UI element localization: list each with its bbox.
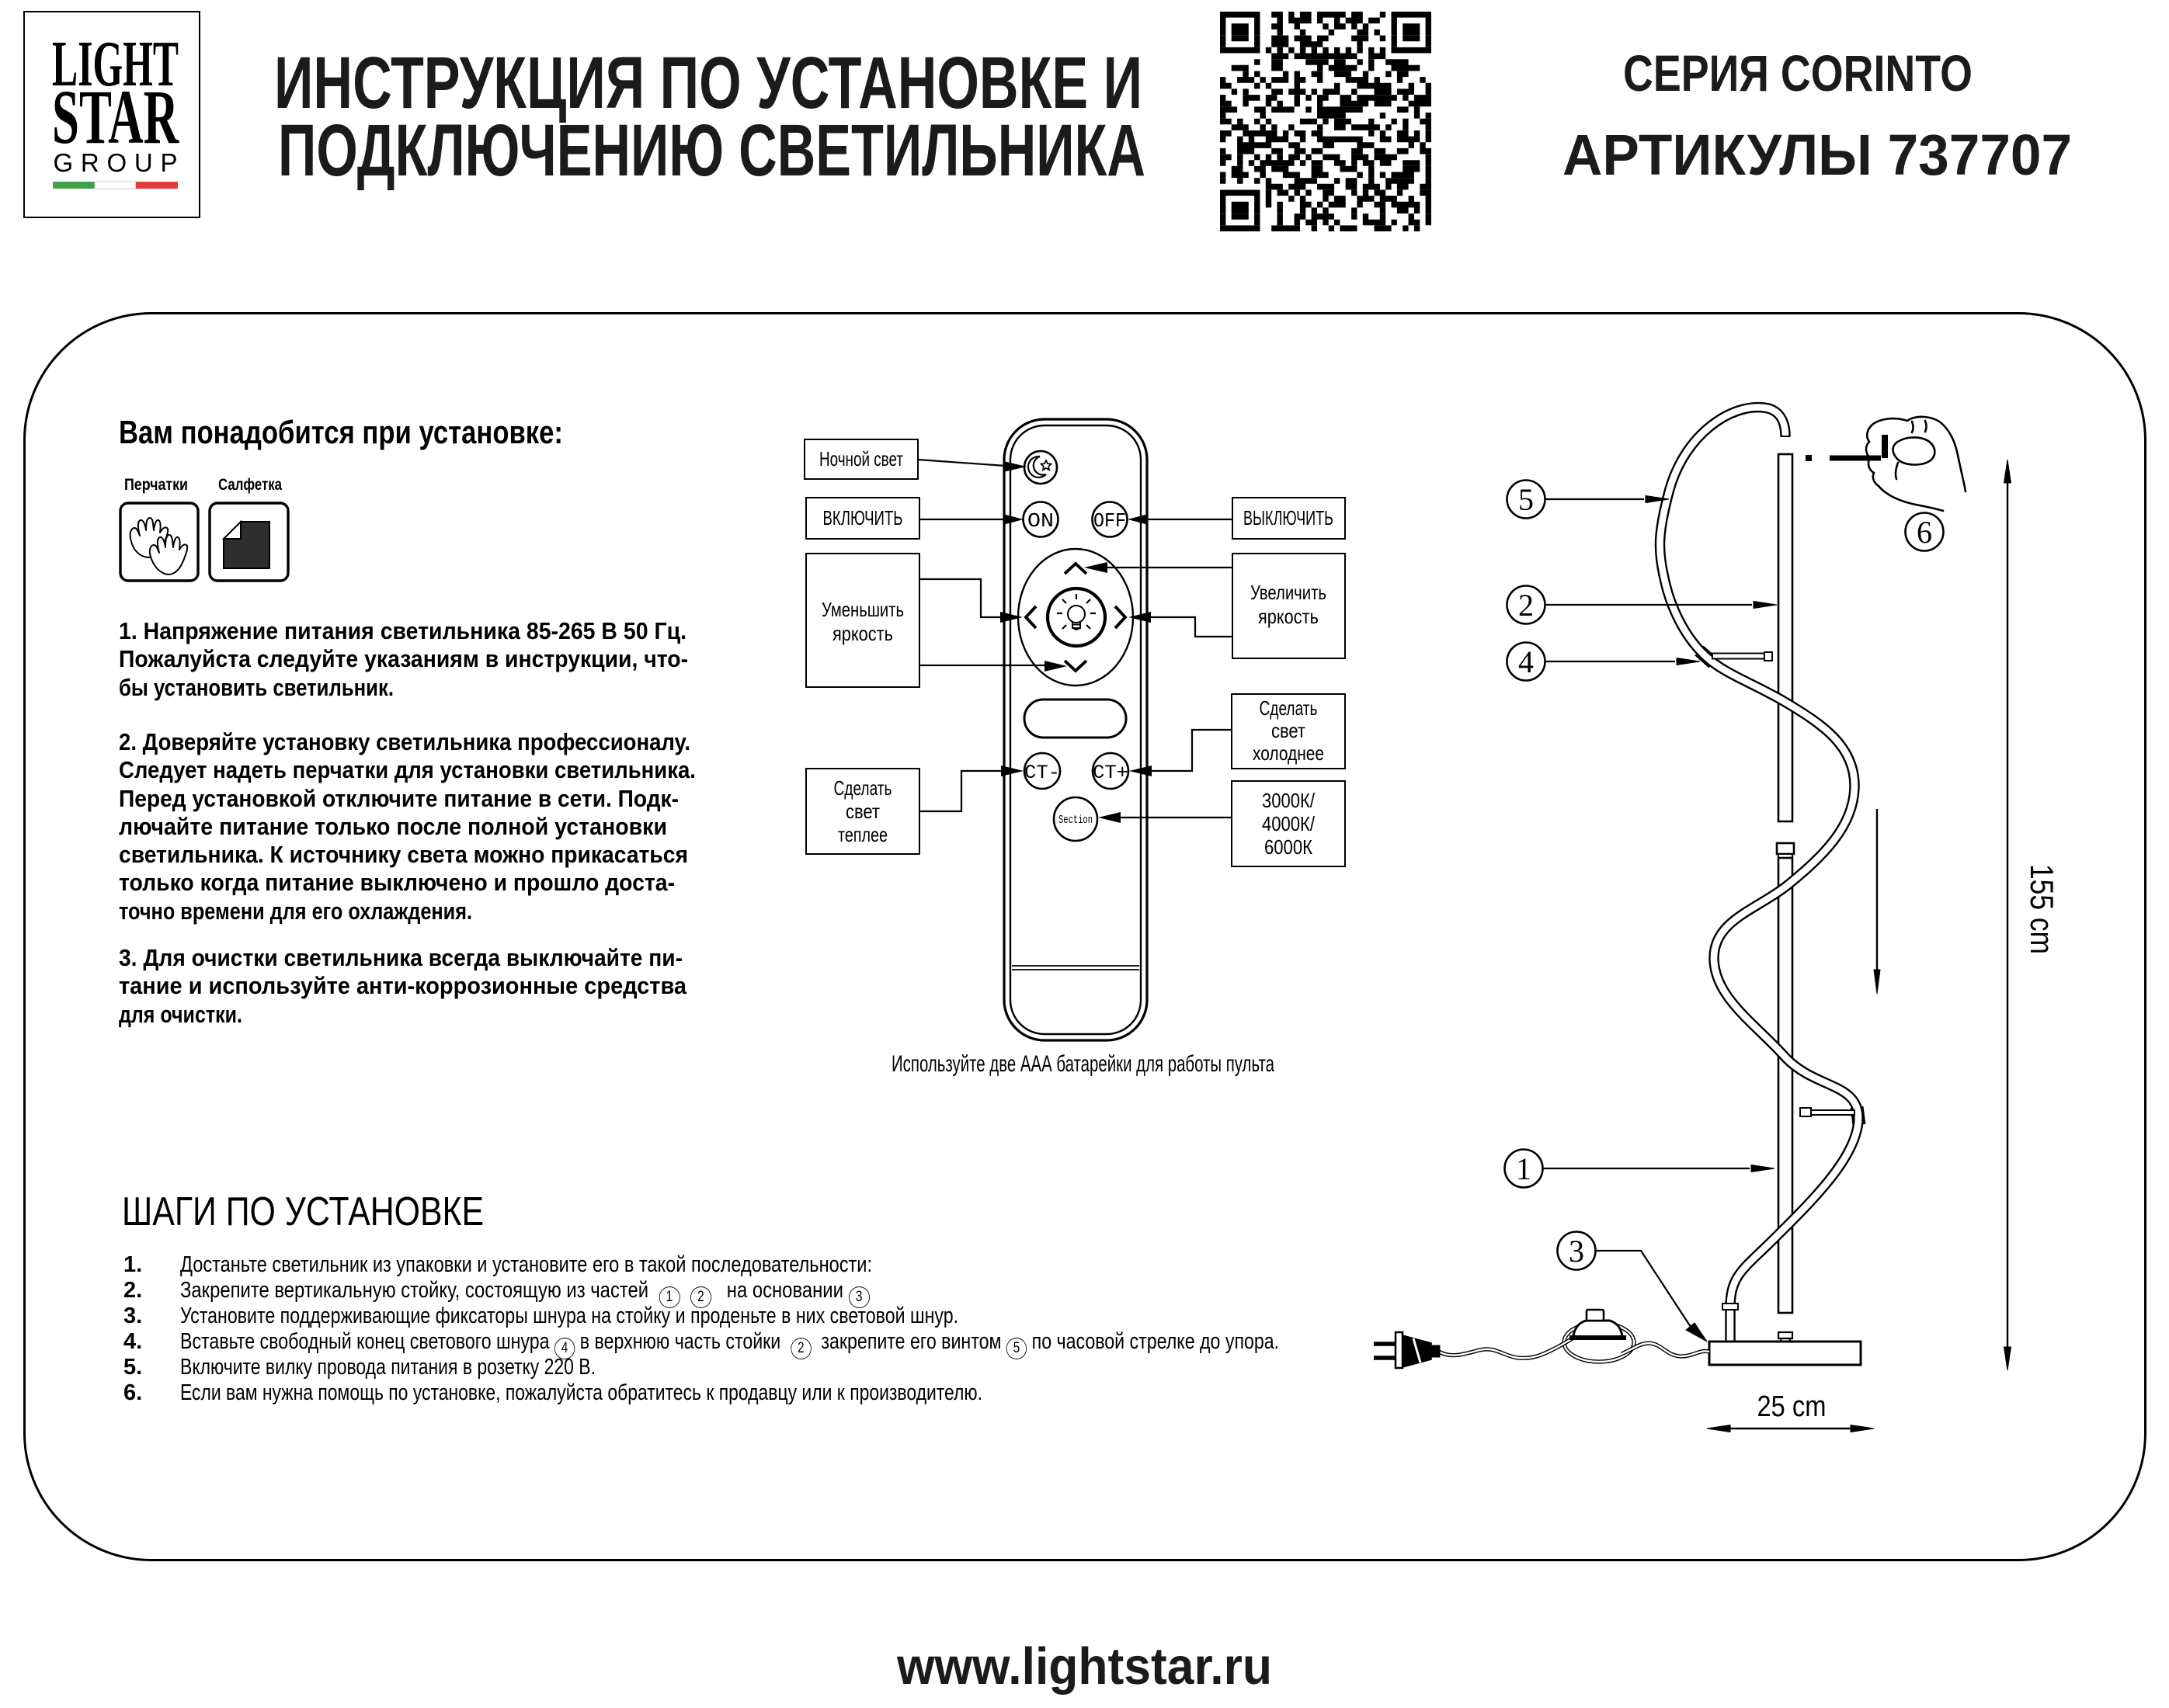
svg-text:3: 3 bbox=[1569, 1234, 1584, 1269]
svg-text:25 cm: 25 cm bbox=[1757, 1390, 1827, 1423]
svg-text:5: 5 bbox=[1518, 482, 1534, 517]
svg-text:ВКЛЮЧИТЬ: ВКЛЮЧИТЬ bbox=[823, 506, 903, 529]
svg-text:ON: ON bbox=[1027, 509, 1054, 533]
svg-text:6: 6 bbox=[1917, 515, 1932, 550]
svg-text:свет: свет bbox=[846, 800, 880, 823]
svg-text:Ночной свет: Ночной свет bbox=[819, 447, 903, 470]
svg-text:холоднее: холоднее bbox=[1253, 741, 1324, 765]
svg-text:3000К/: 3000К/ bbox=[1262, 789, 1316, 812]
svg-text:4000К/: 4000К/ bbox=[1262, 812, 1316, 835]
svg-text:Сделать: Сделать bbox=[834, 776, 892, 800]
svg-text:6000К: 6000К bbox=[1264, 835, 1312, 859]
svg-text:CT-: CT- bbox=[1024, 762, 1060, 784]
svg-text:яркость: яркость bbox=[1258, 605, 1319, 628]
svg-text:Уменьшить: Уменьшить bbox=[822, 598, 904, 621]
svg-text:Section: Section bbox=[1058, 814, 1093, 827]
svg-text:Увеличить: Увеличить bbox=[1250, 581, 1326, 604]
svg-text:2: 2 bbox=[1518, 588, 1534, 623]
svg-text:ВЫКЛЮЧИТЬ: ВЫКЛЮЧИТЬ bbox=[1243, 506, 1333, 529]
svg-text:свет: свет bbox=[1271, 719, 1305, 742]
svg-text:CT+: CT+ bbox=[1093, 762, 1128, 784]
svg-text:STAR: STAR bbox=[52, 74, 179, 160]
svg-text:4: 4 bbox=[1518, 644, 1534, 679]
svg-text:OFF: OFF bbox=[1093, 509, 1126, 533]
svg-text:яркость: яркость bbox=[832, 622, 893, 645]
svg-text:Используйте две ААА батарейки: Используйте две ААА батарейки для работы… bbox=[892, 1051, 1274, 1077]
svg-text:Сделать: Сделать bbox=[1260, 696, 1318, 720]
svg-text:теплее: теплее bbox=[838, 823, 888, 846]
svg-text:1: 1 bbox=[1516, 1151, 1531, 1186]
svg-text:155 cm: 155 cm bbox=[2024, 864, 2060, 954]
